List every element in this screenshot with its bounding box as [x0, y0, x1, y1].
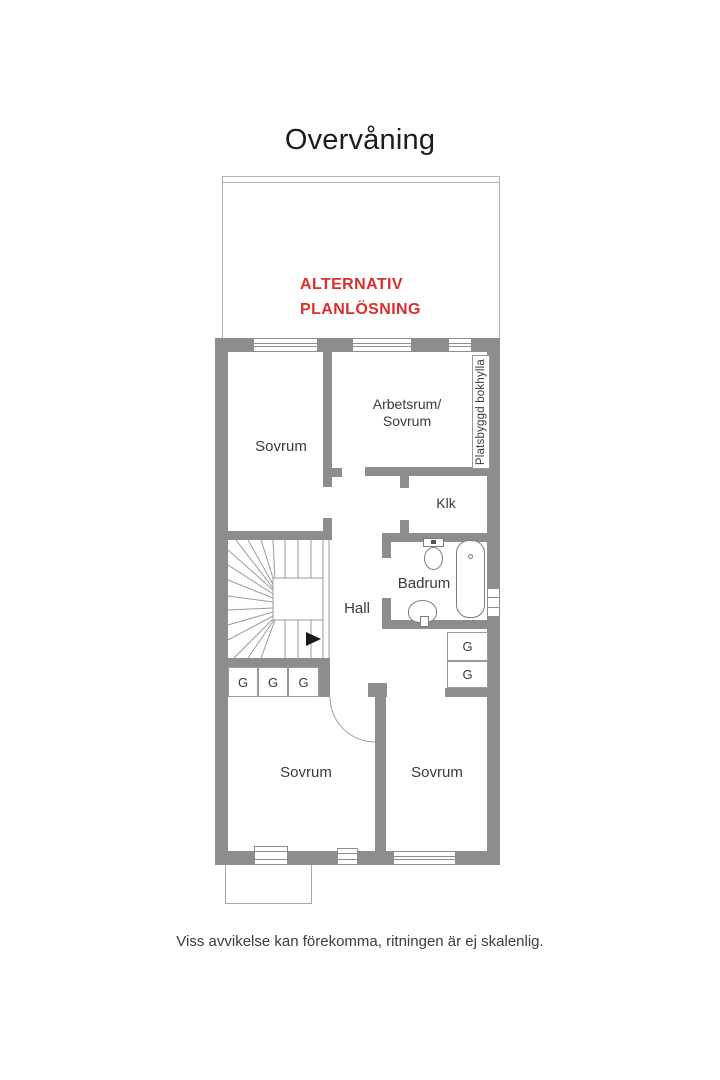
room-label-bedroom-bottom-left: Sovrum [246, 764, 366, 781]
staircase [228, 540, 330, 658]
wall-bathroom-left-stub [382, 598, 391, 620]
wall-bedroom-divider-top [323, 352, 332, 487]
toilet-bowl [424, 547, 443, 570]
wardrobe-cell: G [228, 667, 258, 697]
room-label-klk: Klk [416, 495, 476, 512]
wall-stair-bottom [228, 658, 330, 667]
balcony-outline [225, 865, 312, 904]
alternative-plan-label-line1: ALTERNATIV [300, 272, 421, 297]
sink-faucet [420, 616, 429, 627]
balcony-door-window [254, 846, 288, 865]
toilet-button [431, 540, 436, 544]
room-label-text: Badrum [398, 575, 451, 592]
room-label-text: Klk [436, 495, 455, 511]
room-label-text: Hall [344, 600, 370, 617]
disclaimer-note: Viss avvikelse kan förekomma, ritningen … [0, 933, 720, 950]
wall-closet-right [319, 667, 330, 697]
bathtub-drain [468, 554, 473, 559]
wall-stair-top [228, 531, 332, 540]
stair-direction-arrow [306, 632, 321, 646]
room-label-office: Arbetsrum/ Sovrum [337, 396, 477, 430]
alternative-plan-label-line2: PLANLÖSNING [300, 297, 421, 322]
wall-top-segment [412, 338, 448, 352]
room-label-bedroom-bottom-right: Sovrum [377, 764, 497, 781]
wardrobe-label: G [268, 675, 278, 690]
wall-office-bottom [365, 467, 488, 476]
wardrobe-label: G [462, 639, 472, 654]
room-label-text: Sovrum [411, 764, 463, 781]
bathroom-wall-window [487, 588, 500, 617]
room-label-text: Sovrum [255, 438, 307, 455]
wall-klk-left-stub [400, 520, 409, 533]
wall-bottom-segment [288, 851, 337, 865]
wall-left [215, 352, 228, 851]
wall-top-segment [318, 338, 352, 352]
alternative-plan-label: ALTERNATIV PLANLÖSNING [300, 272, 421, 322]
room-label-text: Sovrum [280, 764, 332, 781]
wardrobe-label: G [238, 675, 248, 690]
wall-klk-left-stub [400, 476, 409, 488]
window [393, 851, 456, 865]
wall-bottom-segment [358, 851, 393, 865]
wardrobe-cell: G [447, 661, 488, 688]
wardrobe-cell: G [447, 632, 488, 661]
room-label-text: Sovrum [337, 413, 477, 430]
room-label-text: Arbetsrum/ [337, 396, 477, 413]
wall-top-segment [472, 338, 500, 352]
room-label-bedroom-top: Sovrum [221, 438, 341, 455]
wall-stub [332, 468, 342, 477]
window [448, 338, 472, 352]
wall-bathroom-bottom [382, 620, 487, 629]
wardrobe-cell: G [258, 667, 288, 697]
wardrobe-label: G [298, 675, 308, 690]
wall-top-segment [215, 338, 253, 352]
window [253, 338, 318, 352]
floor-plan-page: Overvåning ALTERNATIV PLANLÖSNING Platsb… [0, 0, 720, 1080]
wardrobe-label: G [462, 667, 472, 682]
wall-bottom-segment [456, 851, 500, 865]
page-title: Overvåning [0, 124, 720, 157]
window [337, 848, 358, 865]
window [352, 338, 412, 352]
door-swing-arc [330, 697, 375, 742]
room-label-bathroom: Badrum [384, 575, 464, 592]
wall-closet-bottom-right [445, 688, 488, 697]
wall-bathroom-left-stub [382, 542, 391, 558]
wardrobe-cell: G [288, 667, 319, 697]
wall-bedroom-divider-cap [368, 683, 387, 697]
room-label-hall: Hall [335, 600, 379, 617]
wall-bottom-segment [215, 851, 254, 865]
